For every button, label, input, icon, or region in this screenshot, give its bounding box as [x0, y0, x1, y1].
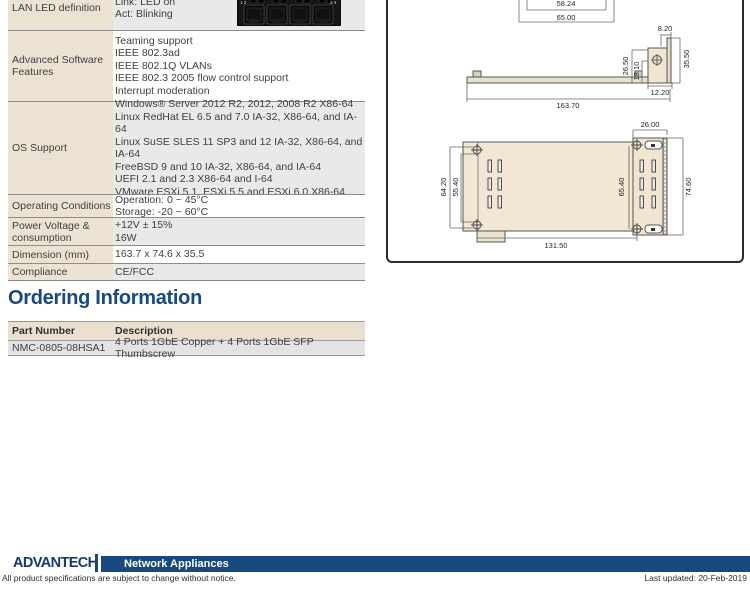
dim-label: 35.50: [682, 50, 691, 69]
port-label-right: 3 4: [330, 0, 337, 5]
spec-label: Compliance: [8, 264, 113, 280]
ordering-data-cell: NMC-0805-08HSA1: [8, 341, 113, 355]
spec-value: +12V ± 15%16W: [113, 218, 365, 245]
spec-row: Power Voltage & consumption+12V ± 15%16W: [8, 217, 365, 245]
ordering-heading: Ordering Information: [8, 287, 202, 310]
spec-label: Operating Conditions: [8, 195, 113, 217]
spec-label: Power Voltage & consumption: [8, 218, 113, 245]
spec-value: Teaming supportIEEE 802.3adIEEE 802.1Q V…: [113, 31, 365, 101]
port-label-left: 1 2: [240, 0, 247, 5]
plan-view: [463, 138, 667, 242]
spec-label: Dimension (mm): [8, 246, 113, 263]
footer-disclaimer: All product specifications are subject t…: [2, 573, 236, 583]
dim-label: 26.50: [621, 57, 630, 76]
dim-label: 58.24: [557, 0, 576, 8]
dim-label: 74.60: [684, 178, 693, 197]
spec-row: Dimension (mm)163.7 x 74.6 x 35.5: [8, 245, 365, 263]
spec-row: LAN LED definitionLink: LED onAct: Blink…: [8, 0, 365, 30]
footer-banner: Network Appliances: [101, 556, 750, 572]
dim-label: 12.20: [651, 88, 670, 97]
footer-divider: [95, 554, 98, 572]
rj45-module-icon: 1 2 3 4: [237, 0, 341, 26]
dimension-drawing-panel: 58.24 65.00 8.20 26.50 18.10 35.50 12.20: [386, 0, 744, 263]
spec-row: ComplianceCE/FCC: [8, 263, 365, 280]
spec-row: Advanced Software FeaturesTeaming suppor…: [8, 30, 365, 101]
ordering-data-row: NMC-0805-08HSA14 Ports 1GbE Copper + 4 P…: [8, 341, 365, 355]
spec-value: CE/FCC: [113, 264, 365, 280]
spec-label: LAN LED definition: [8, 0, 113, 30]
dim-label: 55.40: [451, 178, 460, 197]
lan-ports-image: 1 2 3 4: [237, 0, 341, 26]
dim-label: 163.70: [557, 101, 580, 110]
spec-row: Operating ConditionsOperation: 0 ~ 45°CS…: [8, 194, 365, 217]
dimension-drawing: 58.24 65.00 8.20 26.50 18.10 35.50 12.20: [388, 0, 742, 261]
spec-label: OS Support: [8, 102, 113, 194]
dim-label: 64.20: [439, 178, 448, 197]
dim-label: 65.00: [557, 13, 576, 22]
spec-label: Advanced Software Features: [8, 31, 113, 101]
footer-last-updated: Last updated: 20-Feb-2019: [644, 573, 747, 583]
ordering-header-cell: Part Number: [8, 322, 113, 340]
advantech-logo: ADVANTECH: [13, 555, 95, 571]
dim-label: 131.50: [545, 241, 568, 250]
dim-label: 65.40: [617, 178, 626, 197]
dim-label: 8.20: [658, 24, 673, 33]
dim-label: 18.10: [632, 62, 641, 81]
ordering-data-cell: 4 Ports 1GbE Copper + 4 Ports 1GbE SFP T…: [113, 341, 365, 355]
spec-value: Windows® Server 2012 R2, 2012, 2008 R2 X…: [113, 102, 365, 194]
spec-row: OS SupportWindows® Server 2012 R2, 2012,…: [8, 101, 365, 194]
spec-table: LAN LED definitionLink: LED onAct: Blink…: [8, 0, 365, 281]
dim-label: 26.00: [641, 120, 660, 129]
ordering-table: Part NumberDescriptionNMC-0805-08HSA14 P…: [8, 321, 365, 356]
spec-value: 163.7 x 74.6 x 35.5: [113, 246, 365, 263]
spec-value: Operation: 0 ~ 45°CStorage: -20 ~ 60°C: [113, 195, 365, 217]
